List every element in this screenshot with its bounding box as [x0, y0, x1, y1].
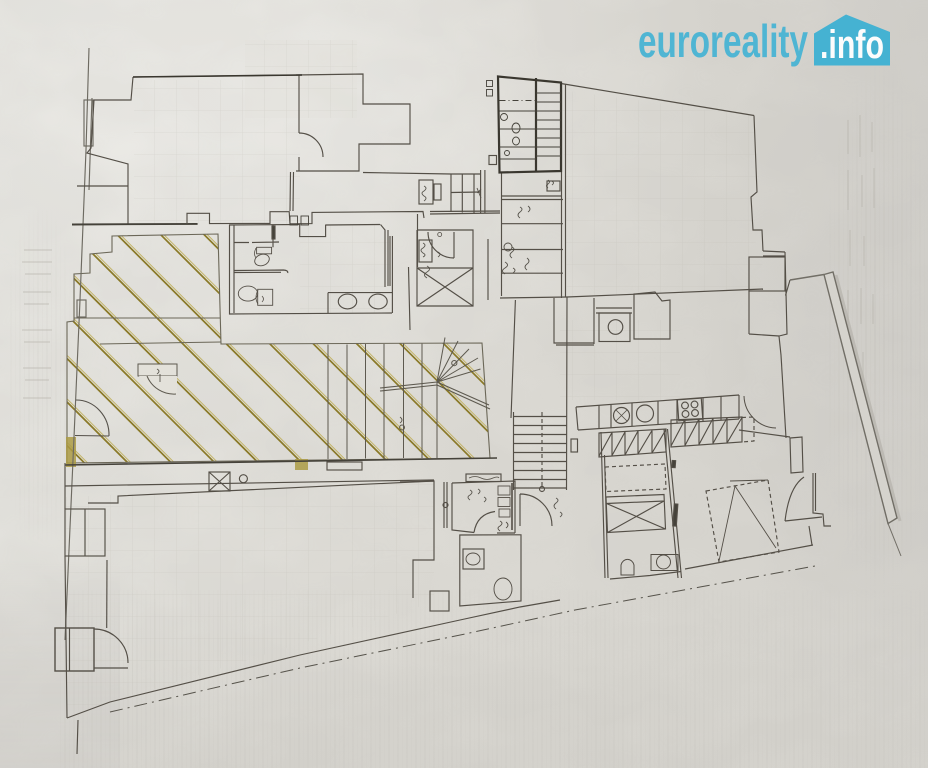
svg-text:euroreality: euroreality [638, 15, 808, 67]
svg-text:.info: .info [820, 23, 884, 67]
